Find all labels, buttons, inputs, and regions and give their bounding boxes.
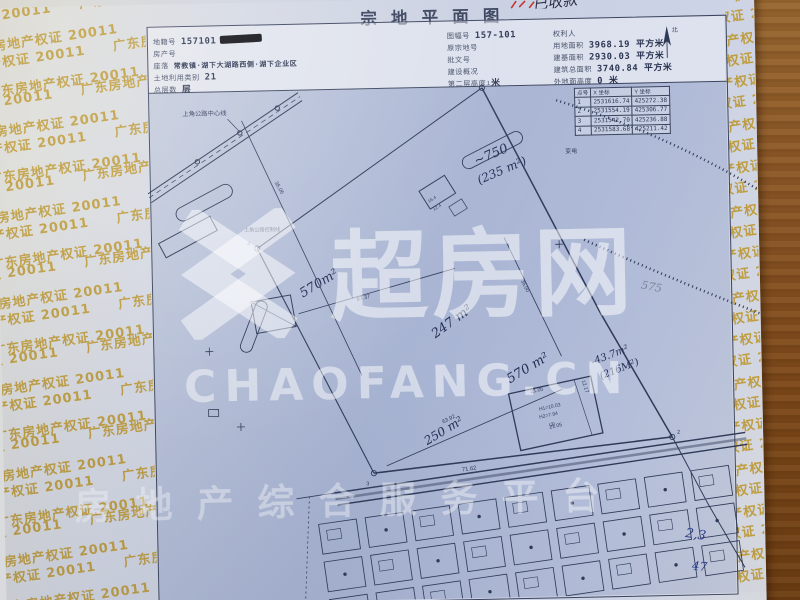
document-content: 广东房地产权证 20011 广东房地产权证 20011广东房地产权证 20011… <box>0 0 767 600</box>
handwritten-margin-note: 2,3 <box>684 526 707 544</box>
corner-number: 3 <box>366 481 369 487</box>
photo-of-parcel-plan-document: 广东房地产权证 20011 广东房地产权证 20011广东房地产权证 20011… <box>0 0 800 600</box>
tiny-label: 12.4 <box>432 202 443 211</box>
parcel-map-drawing: 北 上角公路中心线 上角公路控制线 变电 36.06 67.37 63.92 7… <box>0 0 767 600</box>
dimension-label: 67.37 <box>356 294 371 303</box>
corner-number: 1 <box>487 81 490 87</box>
corner-number: 2 <box>677 430 680 436</box>
dashed-boundary <box>303 497 311 600</box>
dimension-label: 12.17 <box>580 379 590 393</box>
road-centerline-label: 上角公路中心线 <box>182 108 227 118</box>
tiny-label: 16.4 <box>427 195 438 204</box>
road-control-line-label: 上角公路控制线 <box>244 225 280 234</box>
north-arrow-icon <box>663 26 672 58</box>
dimension-label: 21.05 <box>530 386 544 395</box>
buildings <box>157 172 603 458</box>
corner-number: 4 <box>247 242 250 248</box>
survey-marks <box>203 240 567 431</box>
dimension-label: 36.06 <box>273 181 285 196</box>
handwritten-margin-note: 47 <box>691 559 707 574</box>
building-height-label: H1=10.03 <box>538 402 561 413</box>
transformer-label: 变电 <box>565 147 577 155</box>
dimension-label: 36.00 <box>519 279 530 293</box>
document-paper: 广东房地产权证 20011 广东房地产权证 20011广东房地产权证 20011… <box>0 0 767 600</box>
north-label: 北 <box>672 26 678 34</box>
